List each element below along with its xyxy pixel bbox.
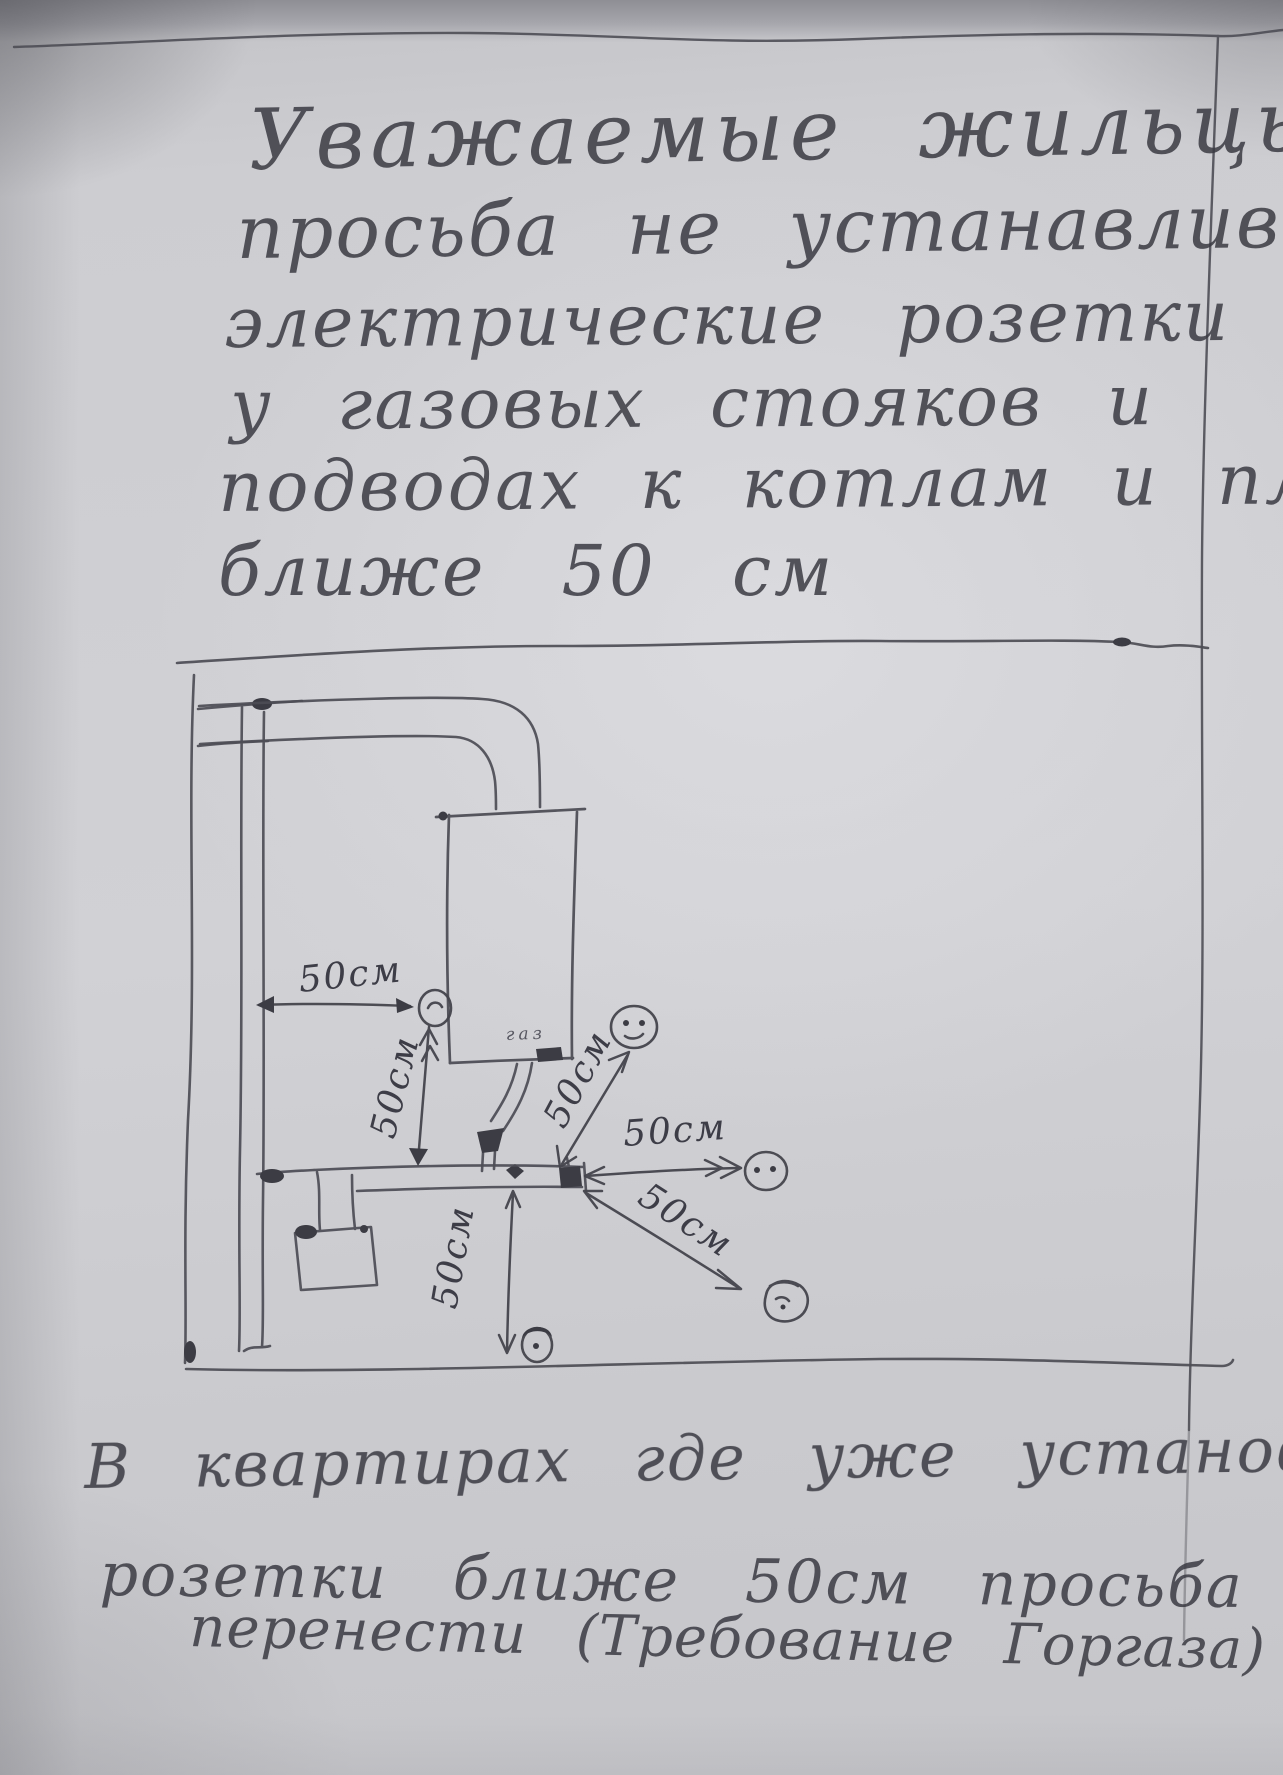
pipe-meter-up: [352, 1175, 355, 1229]
dimension-label-socket-pipe: 50см: [363, 1032, 428, 1143]
dimension-label-lower-right: 50см: [631, 1175, 740, 1266]
flue-outer: [199, 698, 540, 807]
socket-upper-right-mouth: [625, 1034, 643, 1038]
boiler-outlet-pipe: [482, 1063, 532, 1171]
socket-bottom-eye: [533, 1343, 539, 1349]
frame-corner-blob: [184, 1341, 196, 1363]
socket-right-eye-2: [770, 1166, 776, 1172]
flue-inner: [200, 736, 496, 809]
riser-pipe-2: [262, 712, 264, 1347]
pipe-elbow-down: [317, 1172, 320, 1230]
top-note-line-2: просьба не устанавливать: [236, 183, 1283, 270]
top-note-line-1: Уважаемые жильцы: [248, 79, 1283, 182]
meter-outlet-dot: [360, 1225, 368, 1233]
boiler-label: газ: [505, 1024, 546, 1045]
bottom-note-line-1: В квартирах где уже установлены: [84, 1416, 1283, 1498]
top-note-line-5: подводах к котлам и плитам: [218, 443, 1283, 522]
boiler-left: [447, 815, 450, 1063]
socket-right: [745, 1152, 787, 1190]
flue-pipe: [199, 698, 540, 809]
socket-near-boiler: [419, 990, 451, 1026]
arrow-head-down-right: [716, 1270, 741, 1289]
arrow-head-solid-left: [256, 996, 274, 1013]
outlet-line-2: [503, 1063, 532, 1131]
gas-riser: [198, 701, 302, 1351]
boiler-right: [572, 812, 577, 1059]
top-note-line-3: электрические розетки: [224, 281, 1230, 358]
frame-top-ink-blob: [1113, 638, 1131, 647]
socket-lower-right-eye: [781, 1305, 786, 1310]
socket-bottom-cap: [522, 1327, 552, 1338]
socket-right-eye-1: [754, 1167, 760, 1173]
arrow-head-solid-down: [409, 1148, 428, 1166]
socket-lower-right-scribble: [770, 1282, 798, 1301]
socket-upper-right-eye-1: [623, 1020, 629, 1026]
dimension-label-right: 50см: [622, 1107, 728, 1155]
riser-foot: [244, 1346, 270, 1351]
top-note-line-6: ближе 50 см: [218, 536, 835, 606]
frame-left-wall: [185, 675, 194, 1363]
valve-stem-1: [482, 1153, 483, 1171]
photographed-handwritten-notice: газ: [0, 0, 1283, 1775]
pipe-lower: [357, 1187, 582, 1191]
boiler-connector: [536, 1047, 563, 1062]
riser-pipe-1: [239, 707, 242, 1351]
top-note-line-4: у газовых стояков и: [230, 365, 1154, 440]
dimension-arrows: [259, 1004, 741, 1353]
arrow-head-up-left: [584, 1191, 602, 1208]
dimension-label-upper-right: 50см: [536, 1023, 621, 1134]
boiler-corner-dot: [439, 812, 448, 821]
arrow-wall-socket: [259, 1004, 410, 1006]
arrow-pipe-bottom-socket: [507, 1193, 513, 1351]
frame-top: [177, 641, 1208, 663]
diagram-frame: [177, 641, 1233, 1371]
dimension-label-bottom: 50см: [424, 1202, 482, 1311]
tee-joint: [559, 1166, 582, 1188]
boiler-top: [436, 809, 585, 817]
gas-pipe: [257, 1158, 586, 1290]
socket-lower-right-outline: [765, 1281, 808, 1321]
page-top-rule: [14, 30, 1283, 47]
dimension-label-wall: 50см: [297, 949, 405, 1001]
pipe-upper: [314, 1166, 584, 1170]
arrow-head-solid-right: [396, 998, 414, 1013]
socket-near-boiler-mark: [428, 1003, 442, 1008]
frame-bottom-floor: [186, 1359, 1233, 1370]
gas-valve: [477, 1128, 504, 1153]
pipe-weld-blob: [260, 1169, 284, 1183]
meter-inlet-blob: [295, 1225, 317, 1239]
socket-upper-right-eye-2: [639, 1020, 645, 1026]
